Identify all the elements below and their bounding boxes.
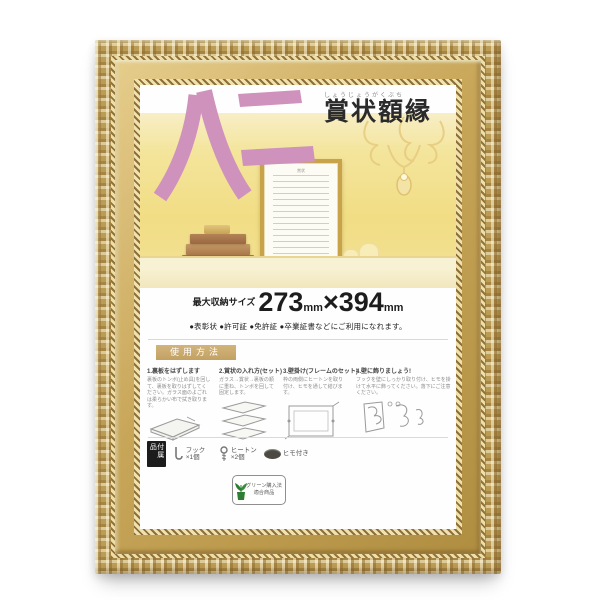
green-mark-text: グリーン購入法 適合商品 xyxy=(246,483,282,497)
green-mark-line1: グリーン購入法 xyxy=(246,483,282,490)
howto-step-4: 4.壁に飾りましょう! フックを壁にしっかり取り付け、ヒモを掛けて水平に飾ってく… xyxy=(356,366,452,434)
divider xyxy=(148,437,448,438)
gold-ornate-frame: 八二 しょうじょうがくぶち 賞状額縁 xyxy=(95,40,501,574)
layering-diagram-icon xyxy=(219,400,269,442)
step-title: 1.裏板をはずします xyxy=(147,366,211,375)
size-height: 394 xyxy=(339,287,384,317)
frame-gold-slope: 八二 しょうじょうがくぶち 賞状額縁 xyxy=(115,60,481,554)
frame-inner-bead: 八二 しょうじょうがくぶち 賞状額縁 xyxy=(134,79,462,535)
green-purchase-law-badge: グリーン購入法 適合商品 xyxy=(232,475,286,505)
accessories-header-badge: 付属品 xyxy=(147,441,166,467)
book xyxy=(186,244,250,255)
howto-step-1: 1.裏板をはずします 裏板のトンボ(止め具)を回して、裏板を取りはずしてください… xyxy=(147,366,211,443)
backboard-diagram-icon xyxy=(147,413,203,443)
product-title-block: しょうじょうがくぶち 賞状額縁 xyxy=(324,90,452,125)
heaton-icon xyxy=(219,446,229,462)
usage-targets-line: ●表彰状 ●許可証 ●免許証 ●卒業証書などにご利用になれます。 xyxy=(140,321,456,332)
product-title: 賞状額縁 xyxy=(324,98,432,126)
size-unit: mm xyxy=(384,302,404,314)
step-body: 裏板のトンボ(止め具)を回して、裏板を取りはずしてください。ガラス面のよごれは柔… xyxy=(147,377,211,410)
gold-trinket xyxy=(204,225,230,234)
frame-outer-bead: 八二 しょうじょうがくぶち 賞状額縁 xyxy=(111,56,485,558)
hook-icon xyxy=(173,446,184,462)
accessory-label: ヒートン ×2個 xyxy=(231,447,257,462)
size-prefix: 最大収納サイズ xyxy=(193,297,256,307)
step-body: 枠の両側にヒートンを取り付け、ヒモを通して結びます。 xyxy=(283,377,347,397)
accessory-himo: ヒモ付き xyxy=(264,449,309,459)
green-mark-line2: 適合商品 xyxy=(246,490,282,497)
insert-sheet: 八二 しょうじょうがくぶち 賞状額縁 xyxy=(140,85,456,529)
howto-step-2: 2.賞状の入れ方(セット) ガラス→賞状→裏板の順に重ね、トンボを回して固定しま… xyxy=(219,366,277,442)
accessory-hook: フック ×1個 xyxy=(173,446,212,462)
step-title: 2.賞状の入れ方(セット) xyxy=(219,366,277,375)
accessory-label: フック ×1個 xyxy=(186,447,212,462)
max-size-banner: 最大収納サイズ273mm×394mm xyxy=(140,288,456,316)
book xyxy=(190,234,246,244)
wall-hanging-diagram-icon xyxy=(356,400,436,434)
accessories-row: 付属品 フック ×1個 xyxy=(147,441,309,467)
product-photo-stage: 八二 しょうじょうがくぶち 賞状額縁 xyxy=(0,0,600,600)
string-coil-icon xyxy=(264,449,281,459)
howto-header-badge: 使用方法 xyxy=(156,345,236,360)
accessory-heaton: ヒートン ×2個 xyxy=(219,446,257,462)
hachini-glyph-svg xyxy=(150,87,322,207)
size-times: × xyxy=(323,287,339,317)
step-title: 4.壁に飾りましょう! xyxy=(356,366,452,375)
step-title: 3.壁掛け(フレームのセット) xyxy=(283,366,347,375)
wall-sconce-icon xyxy=(358,115,450,208)
howto-step-3: 3.壁掛け(フレームのセット) 枠の両側にヒートンを取り付け、ヒモを通して結びま… xyxy=(283,366,347,440)
size-width: 273 xyxy=(258,287,303,317)
plant-icon xyxy=(234,481,248,506)
accessory-label: ヒモ付き xyxy=(283,450,309,457)
display-shelf xyxy=(140,256,456,288)
step-body: フックを壁にしっかり取り付け、ヒモを掛けて水平に飾ってください。落下にご注意くだ… xyxy=(356,377,452,397)
size-name-hachini-graphic: 八二 xyxy=(150,87,322,207)
size-unit: mm xyxy=(303,302,323,314)
divider xyxy=(148,339,448,340)
step-body: ガラス→賞状→裏板の順に重ね、トンボを回して固定します。 xyxy=(219,377,277,397)
frame-set-diagram-icon xyxy=(283,400,341,440)
